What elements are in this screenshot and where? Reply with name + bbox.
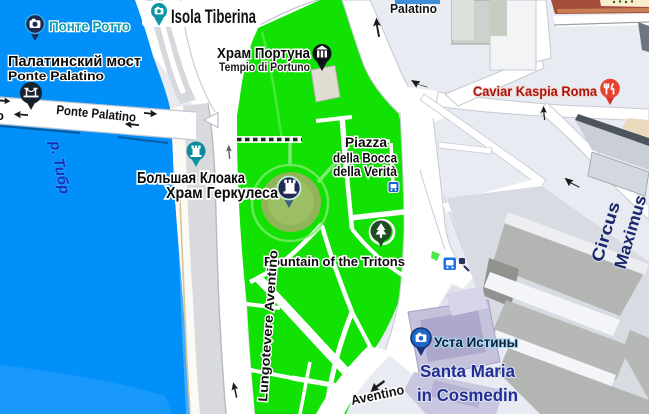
svg-text:Уста Истины: Уста Истины <box>434 334 518 350</box>
svg-text:Tempio di Portuno: Tempio di Portuno <box>219 60 310 74</box>
svg-text:Палатинский мост: Палатинский мост <box>8 54 141 70</box>
svg-text:Piazza: Piazza <box>345 134 387 150</box>
svg-text:Понте Ротто: Понте Ротто <box>49 18 130 34</box>
svg-text:Santa Maria: Santa Maria <box>420 361 515 381</box>
svg-text:Fountain of the Tritons: Fountain of the Tritons <box>264 254 405 269</box>
svg-text:in Cosmedin: in Cosmedin <box>417 385 518 405</box>
svg-text:Ponte Palatino: Ponte Palatino <box>8 69 104 83</box>
svg-text:о: о <box>0 108 4 123</box>
svg-text:Isola Tiberina: Isola Tiberina <box>171 7 256 28</box>
svg-text:Caviar Kaspia Roma: Caviar Kaspia Roma <box>473 84 597 99</box>
svg-text:della Verità: della Verità <box>333 163 397 179</box>
svg-text:Palatino: Palatino <box>390 2 437 16</box>
svg-text:Храм Геркулеса: Храм Геркулеса <box>166 185 278 202</box>
